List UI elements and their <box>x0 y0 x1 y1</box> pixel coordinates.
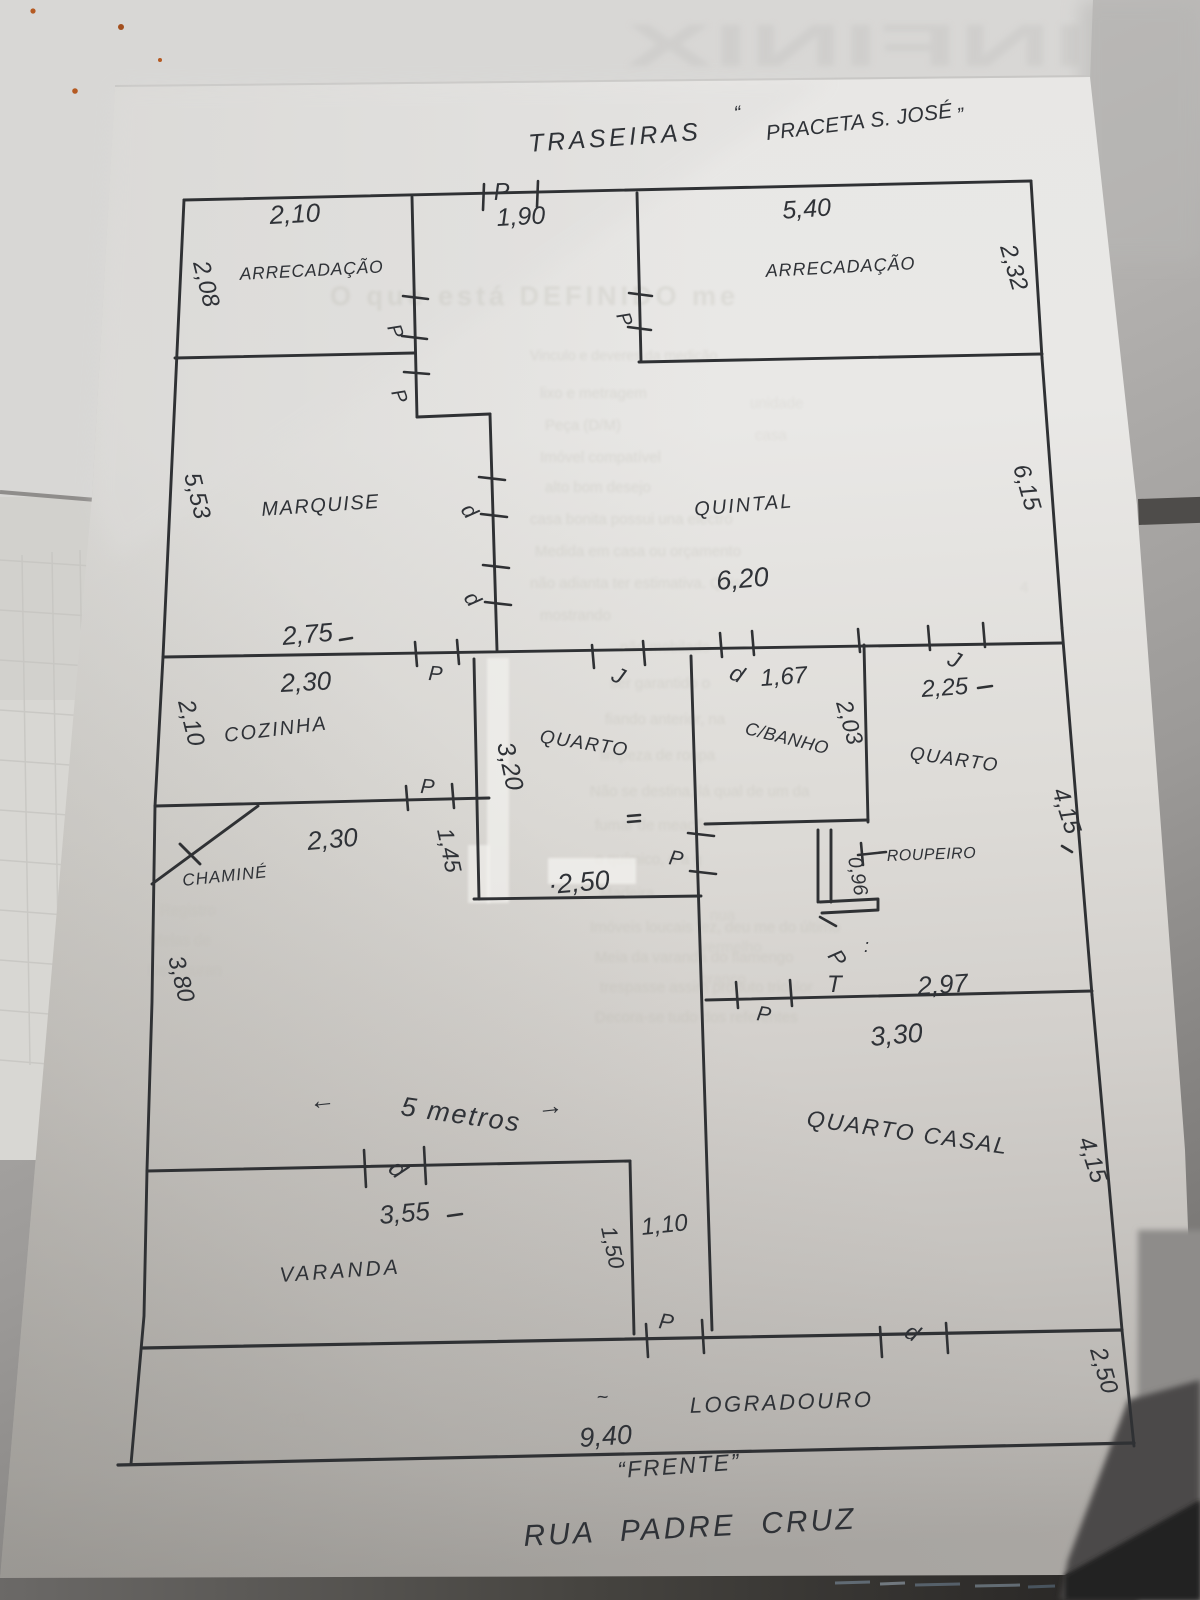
svg-text:P: P <box>420 775 436 799</box>
svg-text:2,30: 2,30 <box>305 822 360 856</box>
svg-text:O que está DEFINIDO me: O que está DEFINIDO me <box>330 281 739 311</box>
svg-text:4: 4 <box>1020 579 1028 596</box>
svg-text:2,10: 2,10 <box>268 197 322 230</box>
svg-text:181: 181 <box>280 1412 305 1429</box>
svg-text:2,97: 2,97 <box>915 967 970 1001</box>
svg-text:ser garantido o: ser garantido o <box>610 675 710 692</box>
svg-text:1,90: 1,90 <box>496 201 546 232</box>
svg-text:lixo e metragem: lixo e metragem <box>540 385 647 402</box>
svg-text:Meia da varanda do flamengo: Meia da varanda do flamengo <box>595 949 793 966</box>
svg-text:unidade: unidade <box>750 395 803 412</box>
svg-text:3,30: 3,30 <box>869 1018 924 1052</box>
svg-text:←: ← <box>307 1083 336 1116</box>
svg-text:Imóvel compatível: Imóvel compatível <box>540 449 661 466</box>
svg-text:2,30: 2,30 <box>279 665 333 698</box>
svg-text:mostrando: mostrando <box>540 607 611 624</box>
svg-text:INFINIX: INFINIX <box>626 12 1088 79</box>
svg-text:Não se destina, lá qual de um: Não se destina, lá qual de um da <box>590 783 810 800</box>
svg-text:branco: branco <box>700 971 746 988</box>
svg-text:fumar de meações: fumar de meações <box>595 817 719 834</box>
svg-text:~: ~ <box>596 1386 610 1409</box>
svg-text::: : <box>864 936 869 956</box>
svg-text:T: T <box>827 971 844 998</box>
svg-text:6,20: 6,20 <box>715 562 770 596</box>
svg-text:Peça (D/M): Peça (D/M) <box>545 417 621 434</box>
svg-text:casa: casa <box>755 427 787 444</box>
svg-text:Melas de: Melas de <box>150 932 211 949</box>
svg-text:5,40: 5,40 <box>781 193 832 224</box>
svg-text:P: P <box>493 178 510 206</box>
svg-text:P: P <box>428 662 444 686</box>
svg-text:fiando anterior, na: fiando anterior, na <box>605 711 726 728</box>
svg-text:·2,50: ·2,50 <box>547 865 611 900</box>
svg-text:1,67: 1,67 <box>760 662 810 692</box>
svg-text:Registro: Registro <box>160 902 216 919</box>
svg-text:vermelho: vermelho <box>700 939 762 956</box>
svg-text:2,25: 2,25 <box>920 673 970 703</box>
svg-text:não adianta ter estimativa. Qu: não adianta ter estimativa. Quis <box>530 575 741 592</box>
svg-text:Medida em casa ou orçamento: Medida em casa ou orçamento <box>535 543 741 560</box>
svg-text:9,40: 9,40 <box>578 1419 633 1453</box>
svg-text:3,55: 3,55 <box>378 1196 432 1230</box>
svg-text:nua: nua <box>710 907 736 924</box>
svg-text:1,10: 1,10 <box>640 1209 690 1241</box>
svg-text:2,75: 2,75 <box>280 617 335 651</box>
svg-text:ROUPEIRO: ROUPEIRO <box>887 845 977 865</box>
svg-text:→: → <box>535 1089 564 1122</box>
svg-text:alto bom desejo: alto bom desejo <box>545 479 651 496</box>
